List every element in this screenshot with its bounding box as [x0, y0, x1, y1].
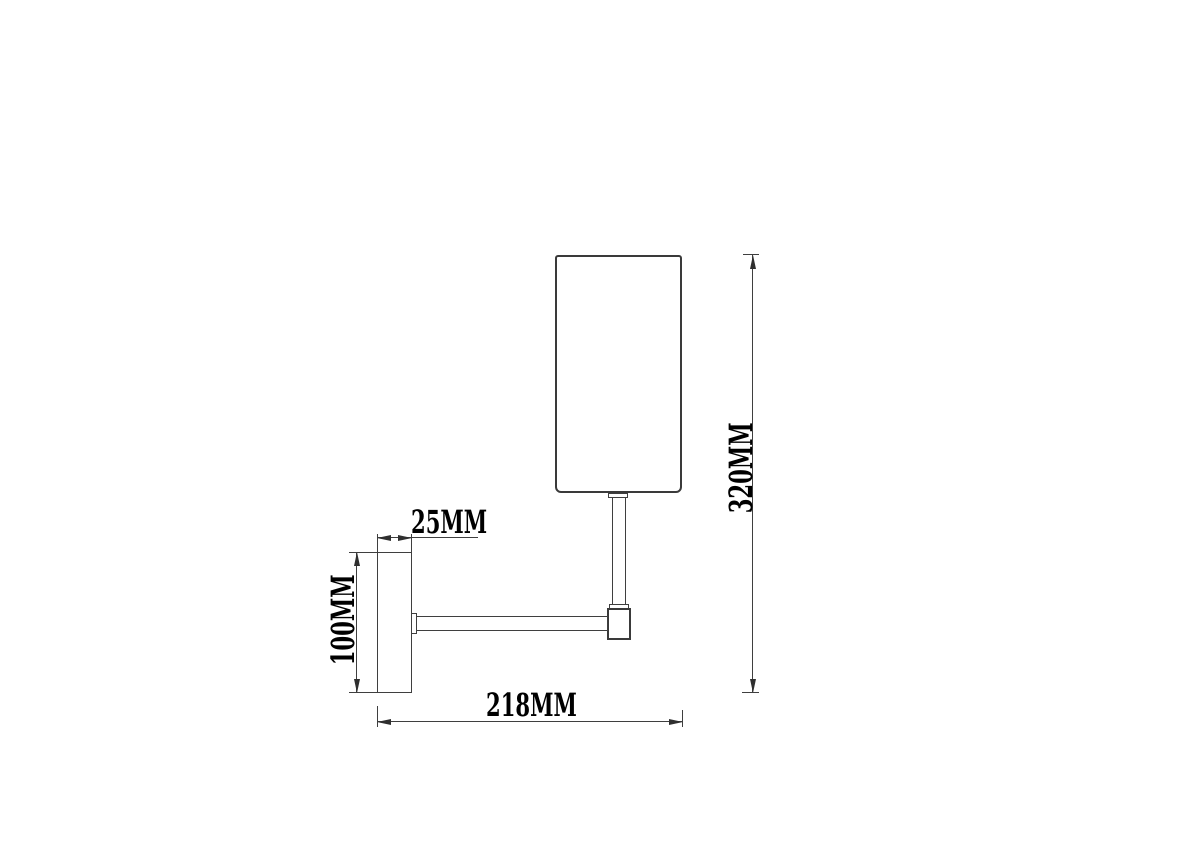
dim-320-tick-top	[743, 254, 759, 255]
dim-25-label: 25MM	[411, 506, 487, 538]
arm-tube	[415, 616, 608, 631]
wall-plate	[377, 552, 412, 693]
dim-100-ext-top	[349, 552, 377, 553]
stem-tube	[612, 497, 626, 605]
dim-218-ext-left	[377, 706, 378, 727]
technical-drawing-canvas: 25MM 100MM 218MM 320MM	[0, 0, 1200, 848]
dim-218-arrow-left	[377, 719, 391, 725]
dim-25-arrow-right	[398, 535, 412, 541]
dim-320-arrow-top	[750, 255, 756, 269]
dim-100-arrow-top	[354, 552, 360, 566]
dim-218-ext-right	[682, 710, 683, 727]
dim-218-label: 218MM	[486, 689, 577, 721]
dim-100-ext-bottom	[349, 692, 377, 693]
dim-320-label: 320MM	[725, 433, 757, 514]
dim-320-arrow-bottom	[750, 679, 756, 693]
joint-block	[607, 608, 631, 640]
lampshade-outline	[555, 255, 682, 493]
dim-100-arrow-bottom	[354, 679, 360, 693]
dim-100-label: 100MM	[327, 585, 359, 666]
dim-25-arrow-left	[377, 535, 391, 541]
dim-320-tick-bottom	[742, 692, 759, 693]
dim-218-arrow-right	[669, 719, 683, 725]
